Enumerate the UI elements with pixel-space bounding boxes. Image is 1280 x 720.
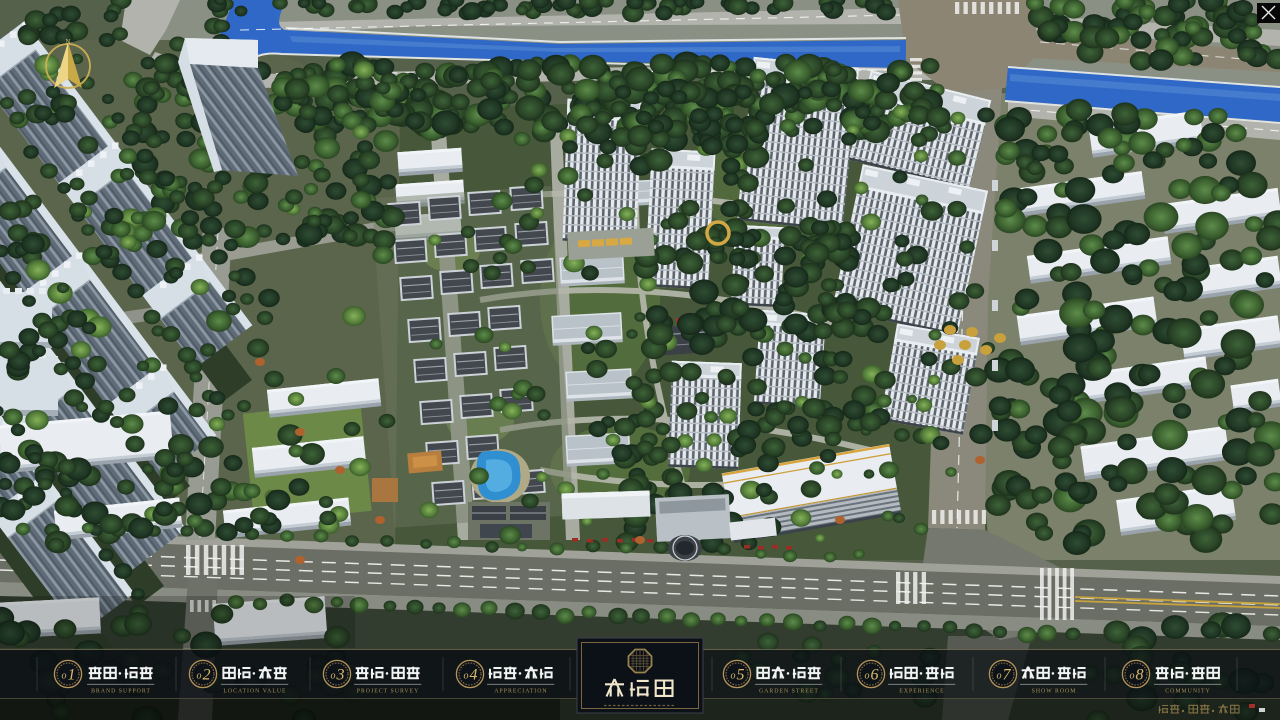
svg-text:N: N — [65, 38, 70, 46]
svg-text:6: 6 — [871, 667, 879, 684]
svg-text:2: 2 — [203, 667, 211, 684]
svg-text:5: 5 — [737, 667, 745, 684]
svg-text:o: o — [731, 671, 736, 682]
svg-text:o: o — [997, 671, 1002, 682]
svg-text:o: o — [331, 671, 336, 682]
svg-text:EXPERIENCE: EXPERIENCE — [899, 689, 944, 695]
svg-text:o: o — [1130, 671, 1135, 682]
svg-text:GARDEN STREET: GARDEN STREET — [759, 689, 819, 695]
svg-text:o: o — [197, 671, 202, 682]
svg-text:BRAND SUPPORT: BRAND SUPPORT — [91, 689, 151, 695]
svg-text:COMMUNITY: COMMUNITY — [1165, 689, 1210, 695]
svg-text:3: 3 — [336, 667, 345, 684]
svg-text:SHOW ROOM: SHOW ROOM — [1032, 689, 1077, 695]
svg-text:8: 8 — [1136, 667, 1144, 684]
svg-text:LOCATION VALUE: LOCATION VALUE — [223, 689, 286, 695]
svg-text:APPRECIATION: APPRECIATION — [494, 689, 547, 695]
svg-text:o: o — [865, 671, 870, 682]
svg-text:1: 1 — [68, 667, 76, 684]
svg-text:4: 4 — [470, 667, 478, 684]
svg-text:7: 7 — [1003, 667, 1012, 684]
svg-text:o: o — [464, 671, 469, 682]
svg-text:o: o — [62, 671, 67, 682]
svg-text:PROJECT SURVEY: PROJECT SURVEY — [357, 689, 420, 695]
